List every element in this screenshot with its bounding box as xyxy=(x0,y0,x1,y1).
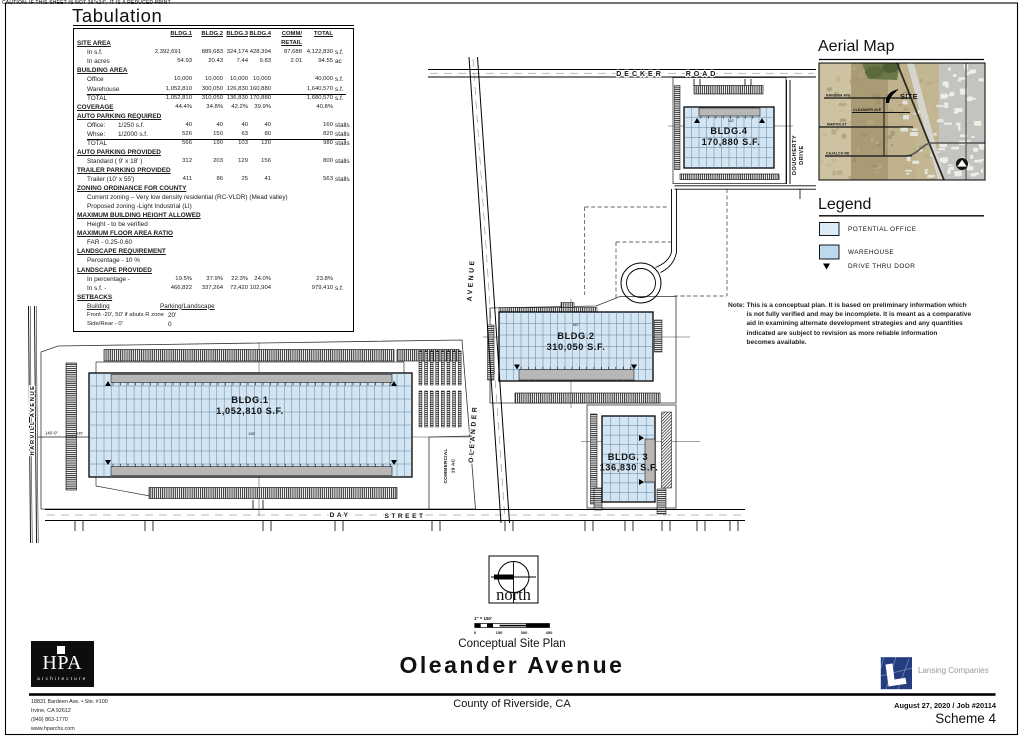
svg-text:DOUGHERTY: DOUGHERTY xyxy=(792,135,798,175)
svg-text:657': 657' xyxy=(573,323,580,327)
svg-text:OLEANDER AVE: OLEANDER AVE xyxy=(853,108,882,112)
svg-text:STREET: STREET xyxy=(384,513,425,520)
svg-text:AVENUE: AVENUE xyxy=(467,258,477,301)
svg-text:300: 300 xyxy=(521,630,528,635)
svg-text:BLDG.4: BLDG.4 xyxy=(710,126,748,136)
svg-text:COMMERCIAL: COMMERCIAL xyxy=(443,448,449,483)
svg-text:310,050 S.F.: 310,050 S.F. xyxy=(547,342,606,352)
svg-text:0: 0 xyxy=(474,630,477,635)
svg-text:1,052,810 S.F.: 1,052,810 S.F. xyxy=(216,406,284,416)
svg-text:170,880 S.F.: 170,880 S.F. xyxy=(702,137,761,147)
svg-text:OLEANDER: OLEANDER xyxy=(468,405,479,463)
svg-text:450: 450 xyxy=(546,630,553,635)
svg-text:HARVILL AVENUE: HARVILL AVENUE xyxy=(30,384,36,455)
svg-text:ROAD: ROAD xyxy=(686,71,719,78)
svg-text:BLDG. 3: BLDG. 3 xyxy=(608,452,648,462)
svg-text:DAY: DAY xyxy=(330,512,351,519)
svg-text:SITE: SITE xyxy=(900,92,918,101)
svg-text:north: north xyxy=(496,585,532,604)
svg-text:140'-0": 140'-0" xyxy=(45,431,59,436)
svg-text:342': 342' xyxy=(728,119,735,123)
svg-text:MARTIN ST: MARTIN ST xyxy=(827,123,847,127)
svg-text:BLDG.1: BLDG.1 xyxy=(231,395,268,405)
svg-text:635': 635' xyxy=(249,432,256,436)
svg-text:1" = 150': 1" = 150' xyxy=(474,616,492,621)
svg-text:19 AC: 19 AC xyxy=(451,458,457,473)
svg-text:BLDG.2: BLDG.2 xyxy=(557,331,594,341)
svg-text:150: 150 xyxy=(496,630,503,635)
svg-text:CAJALCO RD: CAJALCO RD xyxy=(826,152,850,156)
svg-text:NANDINA AVE: NANDINA AVE xyxy=(826,94,851,98)
svg-text:136,830 S.F.: 136,830 S.F. xyxy=(600,463,659,473)
svg-text:DRIVE: DRIVE xyxy=(799,145,805,165)
svg-text:DECKER: DECKER xyxy=(616,71,664,78)
svg-text:135': 135' xyxy=(76,432,83,436)
